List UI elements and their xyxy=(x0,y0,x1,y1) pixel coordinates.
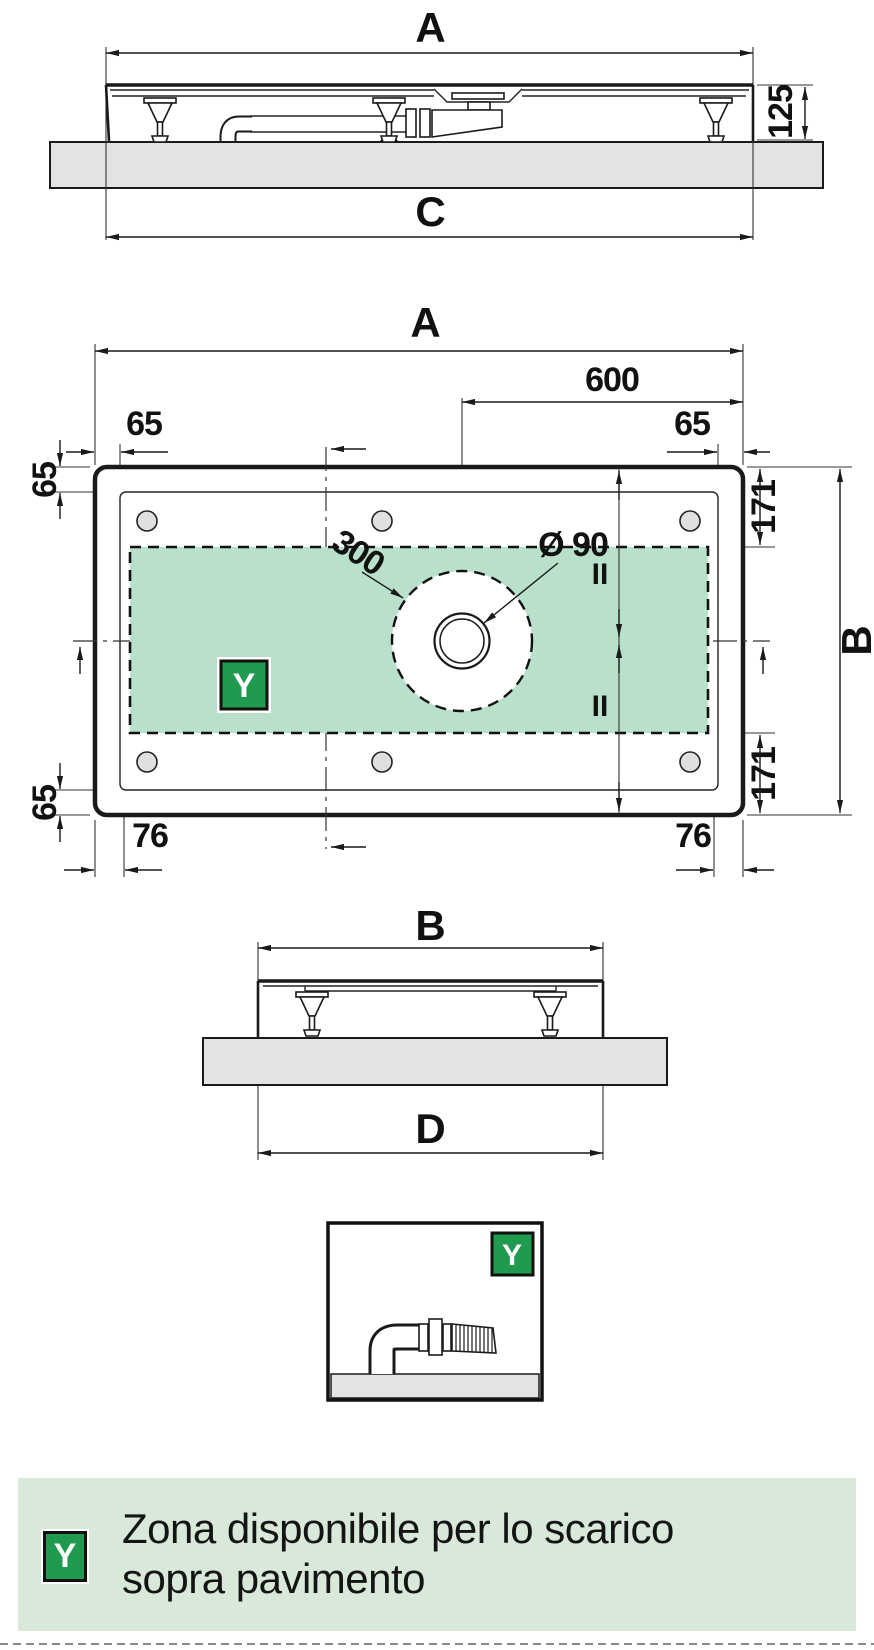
dim-label-76-left: 76 xyxy=(132,817,168,855)
foot-circle xyxy=(680,511,700,531)
foot-circle xyxy=(372,752,392,772)
plan-view: A 600 65 65 65 65 xyxy=(26,299,874,877)
legend: Y Zona disponibile per lo scarico sopra … xyxy=(18,1478,856,1631)
drain-hole-outer xyxy=(435,614,490,669)
legend-text: Zona disponibile per lo scarico sopra pa… xyxy=(122,1504,674,1604)
y-badge-plan: Y xyxy=(217,657,271,713)
dim-label-171-bottom: 171 xyxy=(745,747,783,801)
dim-label-c: C xyxy=(415,188,445,235)
y-badge-label: Y xyxy=(502,1239,522,1272)
dim-label-65-left-top: 65 xyxy=(26,462,64,498)
dim-label-76-right: 76 xyxy=(675,817,711,855)
dim-label-b-plan: B xyxy=(833,626,874,655)
dim-label-a-long: A xyxy=(415,4,445,51)
dim-label-d: D xyxy=(415,1105,444,1152)
floor-slab xyxy=(203,1038,667,1085)
side-elevation-long-view: A 125 xyxy=(50,4,823,240)
side-elevation-short-view: B D xyxy=(203,902,667,1160)
y-badge-detail: Y xyxy=(488,1229,537,1279)
legend-text-line2: sopra pavimento xyxy=(122,1554,674,1604)
dim-label-600: 600 xyxy=(585,361,639,399)
dim-label-171-top: 171 xyxy=(745,480,783,534)
dim-label-65-top-left: 65 xyxy=(126,405,162,443)
dim-label-b-short: B xyxy=(415,902,444,949)
y-badge-label: Y xyxy=(54,1537,77,1576)
y-badge-legend: Y xyxy=(43,1531,87,1582)
foot-circle xyxy=(372,511,392,531)
dim-label-a-plan: A xyxy=(410,299,440,346)
drain-trap-illustration xyxy=(228,109,502,141)
dim-label-65-top-right: 65 xyxy=(674,405,710,443)
dim-label-125: 125 xyxy=(762,85,800,139)
foot-circle xyxy=(137,752,157,772)
floor-strip xyxy=(331,1374,539,1398)
foot-circle xyxy=(137,511,157,531)
floor-slab xyxy=(50,142,823,188)
dim-label-65-left-bottom: 65 xyxy=(26,785,64,821)
drain-detail-inset: Y xyxy=(328,1223,542,1400)
equal-mark-top: II xyxy=(592,558,609,591)
support-feet-short xyxy=(296,992,566,1036)
equal-mark-bottom: II xyxy=(592,690,609,723)
technical-drawing: A 125 xyxy=(0,0,874,1650)
legend-text-line1: Zona disponibile per lo scarico xyxy=(122,1504,674,1554)
y-badge-label: Y xyxy=(233,667,256,705)
foot-circle xyxy=(680,752,700,772)
